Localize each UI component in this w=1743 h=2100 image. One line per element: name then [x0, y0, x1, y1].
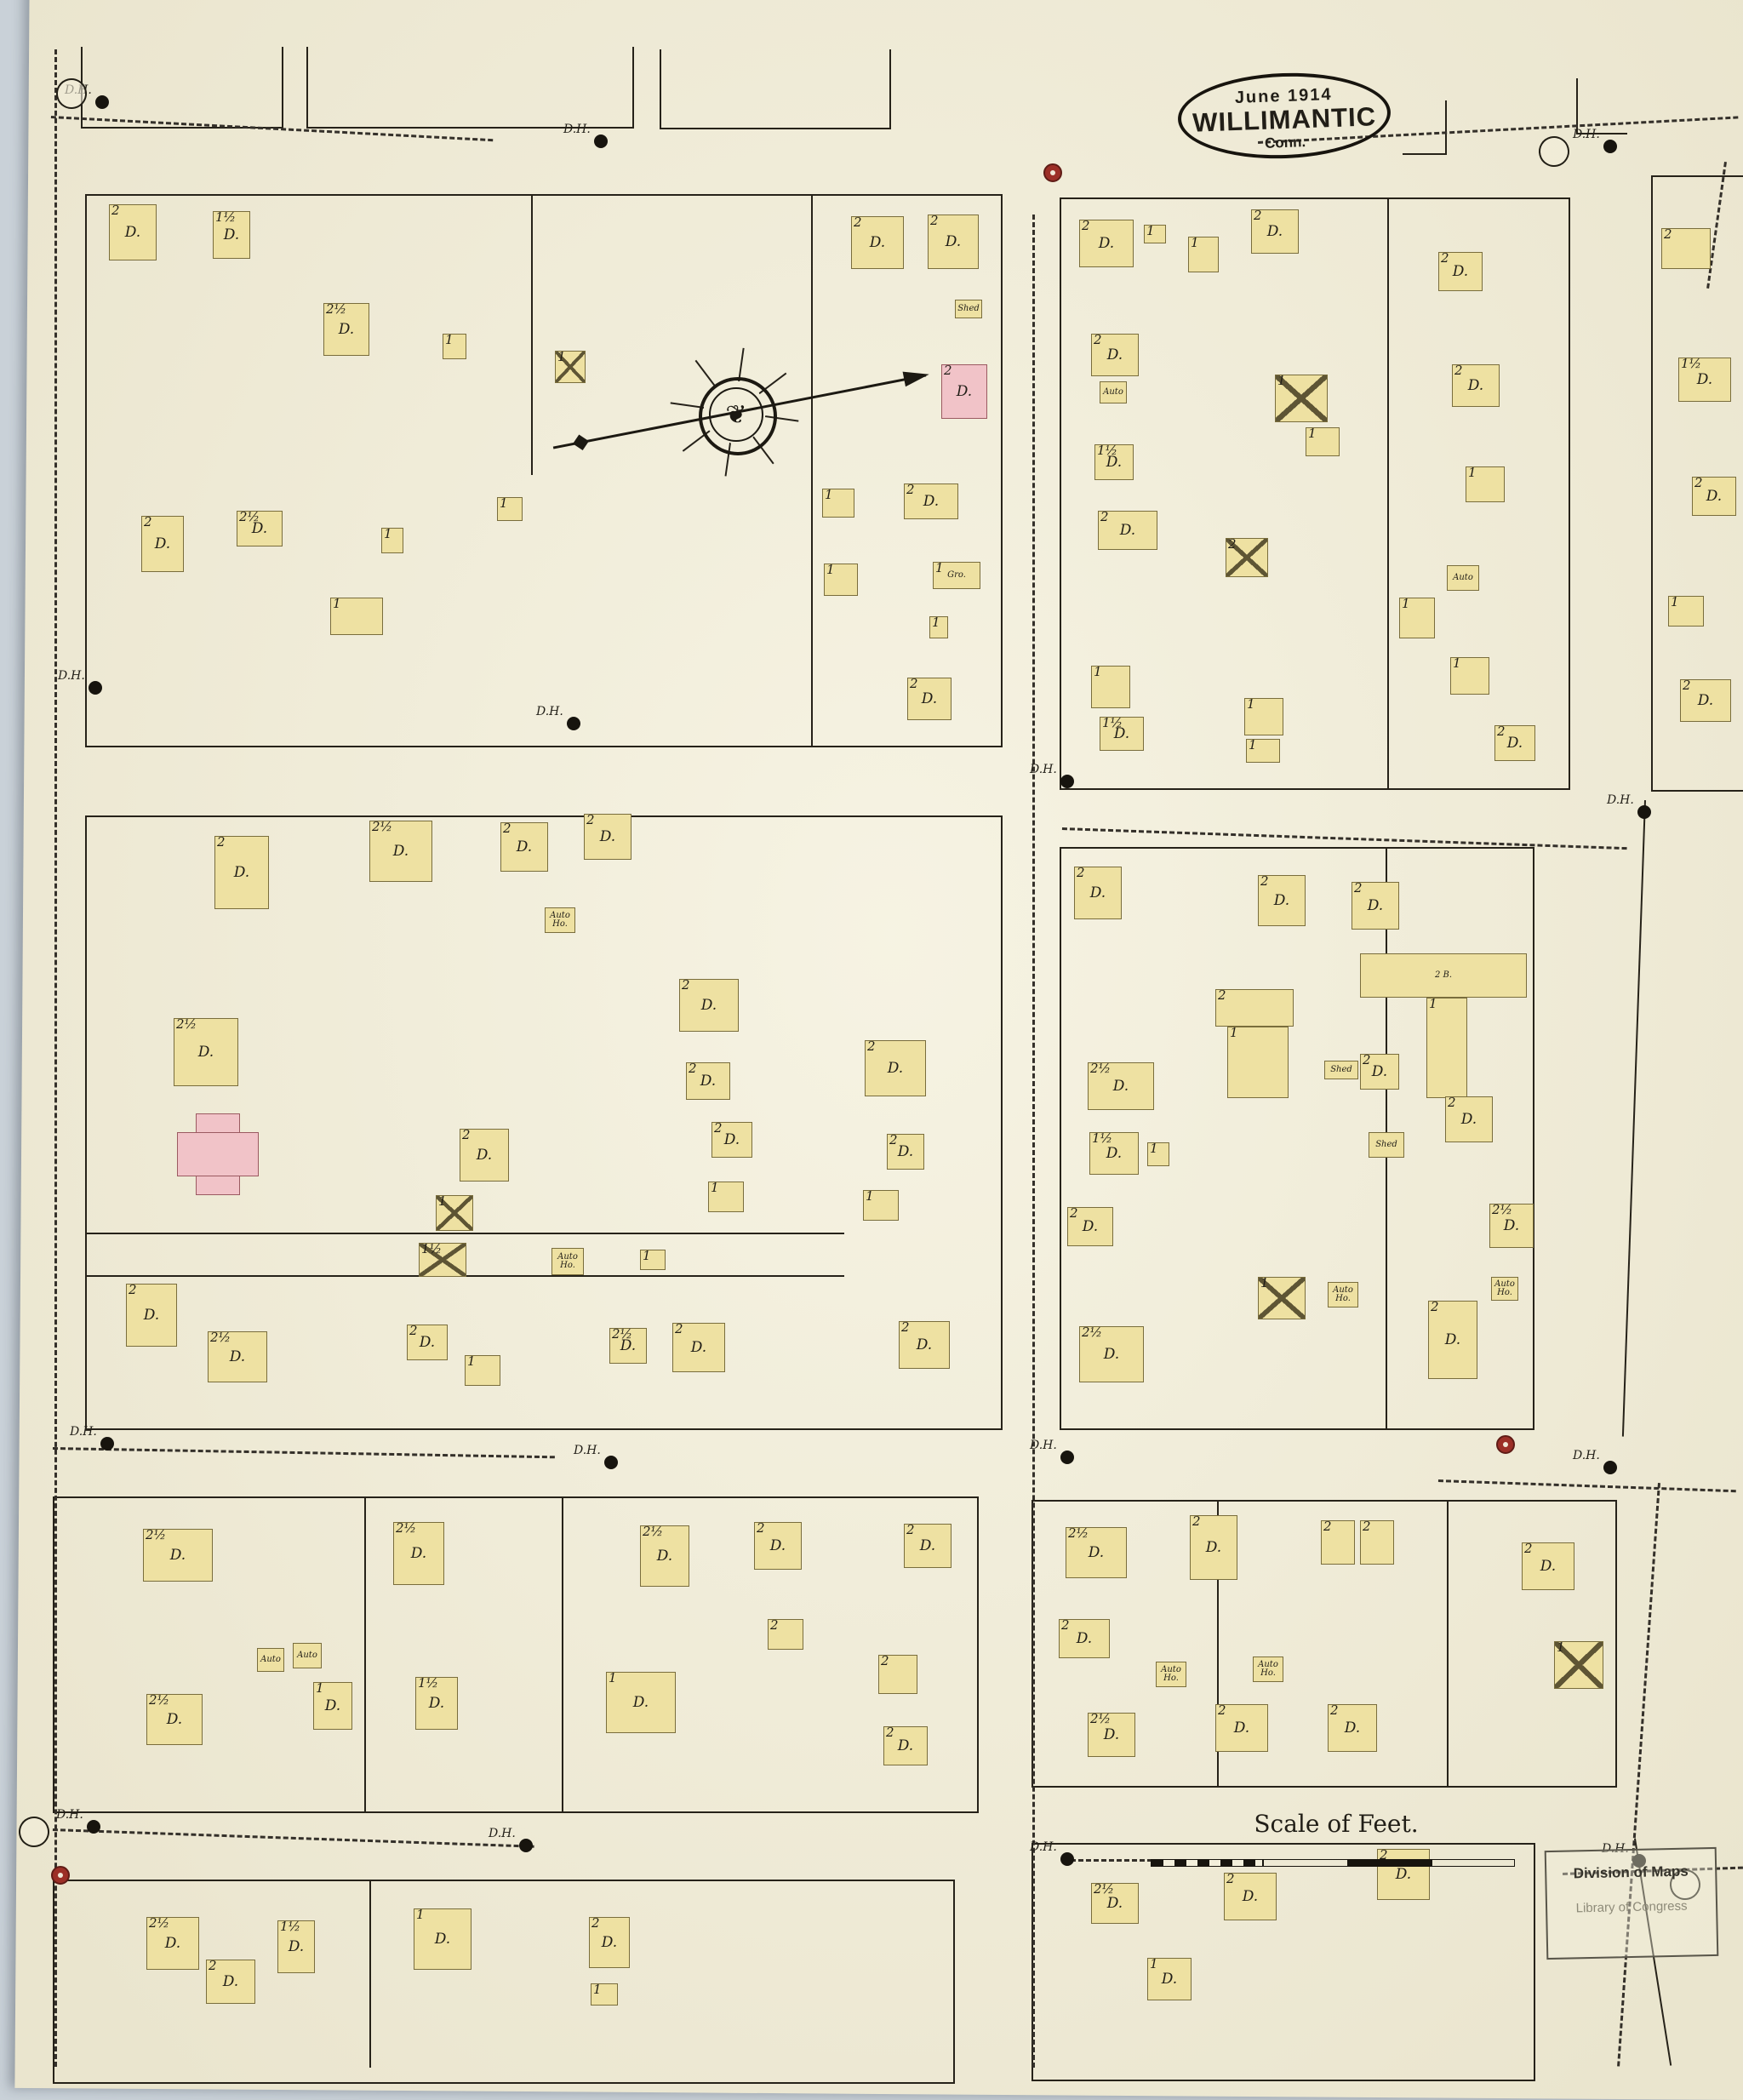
scale-of-feet: Scale of Feet.: [1151, 1810, 1522, 1883]
fire-alarm-box-icon: [51, 1866, 70, 1885]
stamp-line2: Library of Congress: [1547, 1898, 1716, 1916]
scale-title: Scale of Feet.: [1151, 1810, 1522, 1838]
scale-bar: [1151, 1859, 1515, 1867]
library-stamp: Division of Maps Library of Congress: [1545, 1847, 1719, 1960]
stamp-line1: Division of Maps: [1546, 1863, 1715, 1883]
compass-inner-ornament: ❦: [709, 387, 763, 442]
fire-alarm-box-icon: [1043, 163, 1062, 182]
fire-alarm-box-icon: [1496, 1435, 1515, 1454]
compass-rose-icon: ❦: [545, 358, 945, 485]
map-canvas: 2 D. 1½ D. 2½ D. 1 1 1 1 2: [0, 0, 1743, 2068]
fire-alarm-boxes: [0, 0, 1743, 2068]
sanborn-map-sheet: { "title_oval": {"date": "June 1914", "c…: [0, 0, 1743, 2068]
